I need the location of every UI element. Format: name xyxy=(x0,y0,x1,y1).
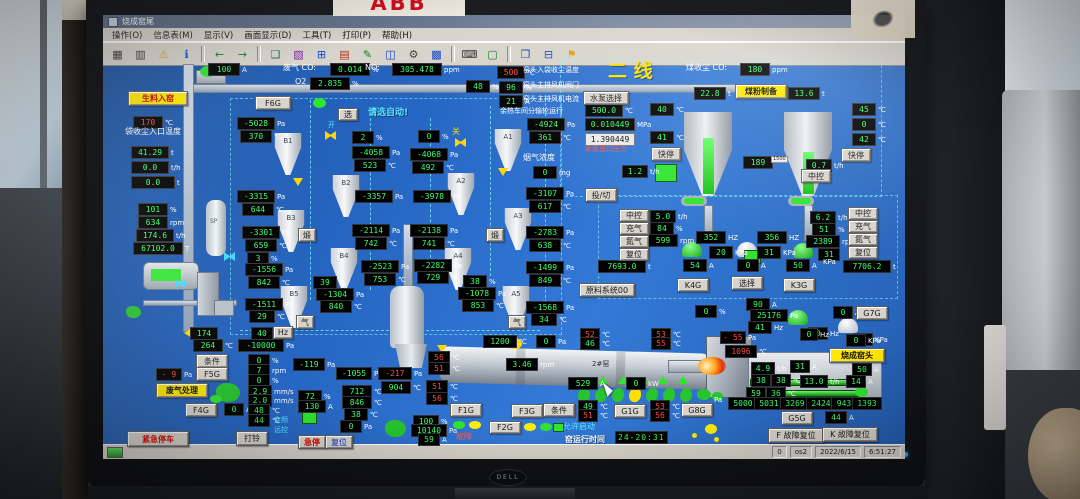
menu-item-0[interactable]: 操作(O) xyxy=(112,29,142,41)
value: -3315 xyxy=(237,190,275,203)
value-box: 180ppm xyxy=(740,63,788,76)
value-box: 48% xyxy=(466,80,499,93)
hmi-button[interactable]: 气 xyxy=(296,315,314,329)
menu-bar: 操作(O)信息表(M)显示(V)画面显示(D)工具(T)打印(P)帮助(H) xyxy=(103,28,905,42)
hmi-button[interactable]: 废气处理 xyxy=(156,383,208,398)
grid-icon[interactable]: ▦ xyxy=(107,45,128,64)
hmi-button[interactable]: K4G xyxy=(677,278,709,292)
unit: t/h xyxy=(176,232,186,240)
value: 659 xyxy=(245,239,277,252)
unit: ℃ xyxy=(279,242,287,250)
hmi-label: 袋收尘入口温度 xyxy=(125,128,181,136)
value: 0.0 xyxy=(131,161,169,174)
menu-item-5[interactable]: 打印(P) xyxy=(342,29,371,41)
hmi-button[interactable]: F5G xyxy=(196,367,228,381)
hmi-button[interactable]: 选 xyxy=(338,108,358,121)
value-box: -2783Pa xyxy=(526,226,574,239)
background-window-right xyxy=(1005,0,1080,95)
value: 2 xyxy=(352,131,374,144)
hmi-button[interactable]: 复位 xyxy=(848,246,878,259)
unit: t/h xyxy=(777,365,787,373)
value: 1096 xyxy=(725,345,757,358)
photo-of-control-room: ABB DELL 烧成窑尾 操作(O)信息表(M)显示(V)画面显示(D)工具(… xyxy=(0,0,1080,499)
value-box: 46℃ xyxy=(580,337,610,350)
unit: Pa xyxy=(285,266,293,274)
cyclone-label: B5 xyxy=(279,290,309,298)
value: 24-20:31 xyxy=(615,431,668,444)
menu-item-3[interactable]: 画面显示(D) xyxy=(244,29,291,41)
value-box: - 9Pa xyxy=(156,368,192,381)
value: 1200 xyxy=(483,335,517,348)
forward-icon[interactable]: → xyxy=(232,45,253,64)
value-box: -217Pa xyxy=(378,367,422,380)
unit: A xyxy=(772,301,777,309)
unit: t xyxy=(171,149,174,157)
value-box: -5028Pa xyxy=(237,117,285,130)
hmi-button[interactable]: 气 xyxy=(508,315,526,329)
value: 130 xyxy=(298,400,326,413)
unit: ℃ xyxy=(759,348,767,356)
value-box: 741℃ xyxy=(413,237,455,250)
value: 40 xyxy=(650,103,674,116)
value-box: 0% xyxy=(418,130,449,143)
unit: ppm xyxy=(772,66,788,74)
value-box: 2% xyxy=(352,131,383,144)
unit: ℃ xyxy=(519,338,527,346)
blobg-icon xyxy=(385,420,406,437)
value: -3978 xyxy=(413,190,451,203)
value: 634 xyxy=(138,216,168,229)
value-box: 7693.0t xyxy=(598,260,651,273)
menu-item-4[interactable]: 工具(T) xyxy=(302,29,331,41)
value-box: -4068Pa xyxy=(410,148,458,161)
hmi-button[interactable]: 煤粉制备 xyxy=(735,84,787,99)
info-icon[interactable]: ℹ xyxy=(176,45,197,64)
value-box: 0.0t xyxy=(131,176,180,189)
gear-icon[interactable]: ⚙ xyxy=(403,45,424,64)
hmi-button[interactable]: K 故障复位 xyxy=(822,427,878,442)
hmi-button[interactable]: 复位 xyxy=(619,248,649,261)
unit: ℃ xyxy=(559,316,567,324)
unit: A xyxy=(761,262,766,270)
unit: % xyxy=(492,83,499,91)
monitor-icon[interactable]: ▢ xyxy=(482,45,503,64)
unit: t/h xyxy=(830,378,840,386)
value: 34 xyxy=(531,313,557,326)
value-box: 523℃ xyxy=(354,159,396,172)
unit: Pa xyxy=(414,370,422,378)
value-box: 0.0t/h xyxy=(131,161,181,174)
value: 48 xyxy=(466,80,490,93)
value: -1556 xyxy=(245,263,283,276)
hmi-button[interactable]: 生料入窑 xyxy=(128,91,188,106)
hmi-button[interactable]: 原料系统00 xyxy=(579,283,635,297)
unit: ℃ xyxy=(625,107,633,115)
value: 38 xyxy=(751,374,771,387)
menu-item-1[interactable]: 信息表(M) xyxy=(153,29,192,41)
value: 38 xyxy=(771,374,791,387)
arrdy-icon xyxy=(293,178,303,186)
value: 0 xyxy=(418,130,440,143)
value: -3301 xyxy=(242,226,280,239)
hmi-button[interactable]: 充气 xyxy=(619,222,649,235)
value: -10000 xyxy=(238,339,284,352)
dell-logo: DELL xyxy=(489,469,527,486)
hmi-button[interactable]: 水泵选择 xyxy=(583,91,629,105)
status-field-0: 0 xyxy=(772,446,786,458)
unit: KPa xyxy=(735,249,748,257)
unit: Pa xyxy=(566,264,574,272)
hmi-label: 远控 xyxy=(274,427,288,434)
hmi-button[interactable]: 中控 xyxy=(801,169,831,183)
hmi-button[interactable]: 复位 xyxy=(325,435,353,449)
unit: ℃ xyxy=(374,399,382,407)
value: 840 xyxy=(320,300,352,313)
unit: % xyxy=(352,80,359,88)
value: 3.46 xyxy=(506,358,538,371)
value: 0 xyxy=(800,328,818,341)
unit: A xyxy=(812,262,817,270)
unit: t/h xyxy=(838,214,848,222)
status-field-3: 6:51:27 xyxy=(864,446,901,458)
unit: rpm xyxy=(680,237,694,245)
circg-icon xyxy=(855,387,868,397)
unit: Pa xyxy=(356,291,364,299)
unit: Pa xyxy=(392,149,400,157)
unit: ℃ xyxy=(450,383,458,391)
value: -2138 xyxy=(410,224,448,237)
app-icon xyxy=(108,17,118,27)
unit: Pa xyxy=(392,227,400,235)
value-box: 492℃ xyxy=(412,161,454,174)
hmi-button[interactable]: F 故障复位 xyxy=(768,428,824,443)
value: -4924 xyxy=(527,118,565,131)
edit-icon[interactable]: ✎ xyxy=(357,45,378,64)
value: -2114 xyxy=(352,224,390,237)
value: 352 xyxy=(696,231,726,244)
value: -217 xyxy=(378,367,412,380)
value: 0.014 xyxy=(330,63,370,76)
value: -5028 xyxy=(237,117,275,130)
value-box: 840℃ xyxy=(320,300,362,313)
value: 56 xyxy=(650,409,670,422)
value-box: 849℃ xyxy=(529,274,571,287)
unit: Pa xyxy=(450,151,458,159)
value: 0.010449 xyxy=(585,118,635,131)
hmi-button[interactable]: 充气 xyxy=(848,220,878,233)
hmi-button[interactable]: 中控 xyxy=(619,209,649,222)
unit: ℃ xyxy=(276,206,284,214)
menu-item-6[interactable]: 帮助(H) xyxy=(382,29,412,41)
unit: Pa xyxy=(450,227,458,235)
unit: MPa xyxy=(637,121,651,129)
value-box: 100A xyxy=(208,63,247,76)
hmi-button[interactable]: 煅 xyxy=(486,228,504,242)
hmi-button[interactable]: 打铃 xyxy=(236,431,268,446)
unit: ℃ xyxy=(452,354,460,362)
value: 0 xyxy=(695,305,717,318)
value: 0 xyxy=(536,335,556,348)
value: 0 xyxy=(852,118,876,131)
value-box: 361℃ xyxy=(529,131,571,144)
abb-wall-sign: ABB xyxy=(333,0,465,16)
hmi-label: 窑头入袋收尘温度 xyxy=(523,67,579,74)
hmi-button[interactable]: 煅 xyxy=(298,228,316,242)
background-blur xyxy=(1028,408,1080,499)
value: 904 xyxy=(381,381,411,394)
value-box: 853℃ xyxy=(462,299,504,312)
value-box: -4058Pa xyxy=(352,146,400,159)
unit: % xyxy=(676,225,683,233)
hmi-button[interactable]: G8G xyxy=(681,403,713,417)
unit: Pa xyxy=(364,423,372,431)
wall-sign-icon xyxy=(851,0,915,38)
trig-icon xyxy=(658,376,668,384)
value: 2.835 xyxy=(310,77,350,90)
unit: ppm xyxy=(444,66,460,74)
hmi-label: 二 线 xyxy=(608,62,653,82)
value-box: 644℃ xyxy=(242,203,284,216)
value: 0 xyxy=(224,403,244,416)
back-icon[interactable]: ← xyxy=(209,45,230,64)
domew-icon xyxy=(838,318,858,333)
unit: ℃ xyxy=(447,240,455,248)
unit: t xyxy=(822,90,825,98)
value: -2783 xyxy=(526,226,564,239)
value: 7693.0 xyxy=(598,260,646,273)
value: 44 xyxy=(825,411,847,424)
value-box: 500.0℃ xyxy=(585,104,633,117)
hmi-button[interactable]: F1G xyxy=(450,403,482,417)
hmi-button[interactable]: Hz xyxy=(273,326,293,339)
unit: Hz xyxy=(774,324,783,332)
value: -2523 xyxy=(361,260,399,273)
value-box: 638℃ xyxy=(529,239,571,252)
value-box: 38 xyxy=(751,374,771,387)
hmi-dashv xyxy=(490,106,492,276)
paper-sheet xyxy=(984,325,1006,430)
value-box: 67102.0T xyxy=(133,242,189,255)
menu-item-2[interactable]: 显示(V) xyxy=(204,29,233,41)
value: 849 xyxy=(529,274,561,287)
chart-icon[interactable]: ▧ xyxy=(288,45,309,64)
hmi-label: KPa xyxy=(823,259,836,266)
cyclone-label: B4 xyxy=(329,252,359,260)
matrix-icon[interactable]: ▩ xyxy=(426,45,447,64)
value: 41.29 xyxy=(131,146,169,159)
value-box: 305.478ppm xyxy=(392,63,460,76)
value-box: -1055Pa xyxy=(336,367,382,380)
unit: Pa xyxy=(454,262,462,270)
value: 14 xyxy=(846,375,866,388)
ovalg2-icon xyxy=(210,395,222,403)
hmi-label: 窑头主排风机阀门 xyxy=(523,82,579,89)
clipboard-icon[interactable]: ❏ xyxy=(265,45,286,64)
hmi-button[interactable]: G7G xyxy=(856,306,888,320)
value-box: 55℃ xyxy=(651,337,681,350)
unit: t/h xyxy=(171,164,181,172)
hmi-button[interactable]: 条件 xyxy=(543,403,575,417)
value-box: 34℃ xyxy=(531,313,567,326)
hmi-label: 烟气浓度 xyxy=(523,154,555,162)
unit: ℃ xyxy=(450,395,458,403)
unit: ℃ xyxy=(354,303,362,311)
value-box: 0KPa xyxy=(846,334,881,347)
value-box: 0Hz xyxy=(800,328,829,341)
unit: Pa xyxy=(558,338,566,346)
hmi-label: 1500 xyxy=(771,156,788,163)
hmi-button[interactable]: 氮气 xyxy=(848,233,878,246)
unit: ℃ xyxy=(388,162,396,170)
blobg-icon xyxy=(697,389,711,400)
value-box: 1200℃ xyxy=(483,335,527,348)
value-box: -3978Pa xyxy=(413,190,461,203)
value: 46 xyxy=(580,337,600,350)
value: 644 xyxy=(242,203,274,216)
unit: Pa xyxy=(277,120,285,128)
unit: t xyxy=(728,90,731,98)
hmi-button[interactable]: F4G xyxy=(185,403,217,417)
background-left xyxy=(0,188,62,499)
value-box: 50A xyxy=(786,259,817,272)
unit: ℃ xyxy=(452,365,460,373)
unit: ℃ xyxy=(878,136,886,144)
value-box: 617℃ xyxy=(529,200,571,213)
value-box: 42℃ xyxy=(852,133,886,146)
unit: ℃ xyxy=(878,121,886,129)
value: 51 xyxy=(578,409,598,422)
hmi-button[interactable]: 投/切 xyxy=(585,188,617,202)
value-box: -3357Pa xyxy=(355,190,403,203)
value-box: 599rpm xyxy=(648,234,694,247)
value: 59 xyxy=(418,433,440,446)
hmi-button[interactable]: F2G xyxy=(489,421,521,434)
hmi-button[interactable]: 快停 xyxy=(841,148,871,162)
value-box: -3301Pa xyxy=(242,226,290,239)
small-equipment xyxy=(214,300,234,316)
hmi-button[interactable]: 条件 xyxy=(196,354,228,368)
abb-logo-text: ABB xyxy=(333,0,465,15)
cascade-icon[interactable]: ❐ xyxy=(515,45,536,64)
tile-icon[interactable]: ⊟ xyxy=(538,45,559,64)
value-box: 40℃ xyxy=(650,103,684,116)
cyclone-label: A3 xyxy=(503,212,533,220)
unit: HZ xyxy=(728,234,738,242)
document-icon[interactable]: ◫ xyxy=(380,45,401,64)
background-pillar xyxy=(62,0,88,499)
value-box: 41.29t xyxy=(131,146,174,159)
keyboard-icon[interactable]: ⌨ xyxy=(459,45,480,64)
value-box: 44A xyxy=(825,411,854,424)
value-box: -1499Pa xyxy=(526,261,574,274)
unit: ℃ xyxy=(563,203,571,211)
unit: Pa xyxy=(327,361,335,369)
hmi-label: 请选自动! xyxy=(368,109,408,118)
value: 2389 xyxy=(806,235,840,248)
flame-icon xyxy=(698,357,726,375)
hmi-button[interactable]: 快停 xyxy=(651,147,681,161)
toolbar-separator xyxy=(451,46,455,62)
window-title: 烧成窑尾 xyxy=(122,16,154,27)
cells-icon[interactable]: ▥ xyxy=(130,45,151,64)
hmi-label: NO: xyxy=(365,64,380,72)
value: 180 xyxy=(740,63,770,76)
value: 523 xyxy=(354,159,386,172)
unit: Pa xyxy=(566,229,574,237)
unit: ℃ xyxy=(282,279,290,287)
value: 0 xyxy=(846,334,866,347)
unit: ℃ xyxy=(673,340,681,348)
hmi-button[interactable]: 烧成窑头 xyxy=(829,348,885,363)
value-box: 0℃ xyxy=(852,118,886,131)
value: -3357 xyxy=(355,190,393,203)
toolbar-separator xyxy=(507,46,511,62)
unit: t xyxy=(177,179,180,187)
unit: ℃ xyxy=(563,134,571,142)
value: 305.478 xyxy=(392,63,442,76)
hmi-label: 余热车间分输轮运行 xyxy=(500,108,563,115)
table-icon[interactable]: ⊞ xyxy=(311,45,332,64)
second-monitor-back xyxy=(1002,90,1080,370)
hmi-button[interactable]: G1G xyxy=(614,404,646,418)
hmi-label: 关 xyxy=(452,128,460,136)
value-box: 529A xyxy=(568,377,605,390)
hmi-button[interactable]: 急停 xyxy=(298,435,326,449)
blobg-icon xyxy=(126,306,141,318)
value: 7706.2 xyxy=(843,260,891,273)
unit: % xyxy=(271,255,278,263)
hmi-button[interactable]: F6G xyxy=(255,96,291,110)
hmi-button[interactable]: K3G xyxy=(783,278,815,292)
value: 0 xyxy=(833,306,853,319)
value: 100 xyxy=(208,63,240,76)
hmi-label: 废气 CO: xyxy=(283,64,316,72)
hmi-button[interactable]: F3G xyxy=(511,404,543,418)
toolbar-separator xyxy=(257,46,261,62)
unit: rpm xyxy=(170,219,184,227)
value: 0.0 xyxy=(131,176,175,189)
unit: A xyxy=(242,66,247,74)
alarm-warning-icon[interactable]: ⚠ xyxy=(153,45,174,64)
unit: % xyxy=(838,226,845,234)
unit: % xyxy=(489,278,496,286)
value-box: 14A xyxy=(846,375,873,388)
hmi-button[interactable]: 选择 xyxy=(731,276,763,290)
value-box: 0% xyxy=(695,305,726,318)
doty-icon xyxy=(692,433,697,438)
value-box: 51℃ xyxy=(428,362,460,375)
report-icon[interactable]: ▤ xyxy=(334,45,355,64)
status-field-1: os2 xyxy=(790,446,812,458)
unit: % xyxy=(376,134,383,142)
hmi-button[interactable]: 氮气 xyxy=(619,235,649,248)
unit: Pa xyxy=(566,304,574,312)
value: 617 xyxy=(529,200,561,213)
cyclone-label: A1 xyxy=(493,133,523,141)
ovalg2-icon xyxy=(540,423,552,431)
hmi-button[interactable]: 中控 xyxy=(848,207,878,220)
value: 29 xyxy=(249,310,275,323)
hmi-button[interactable]: G5G xyxy=(781,411,813,425)
unit: ℃ xyxy=(446,164,454,172)
value-box: 24-20:31 xyxy=(615,431,668,444)
pill-icon xyxy=(681,196,707,206)
value-box: -2138Pa xyxy=(410,224,458,237)
value-box: 22.8t xyxy=(694,87,731,100)
value-box: 40 xyxy=(251,327,273,340)
hmi-button[interactable]: 紧急停车 xyxy=(127,431,189,447)
value: 101 xyxy=(138,203,168,216)
